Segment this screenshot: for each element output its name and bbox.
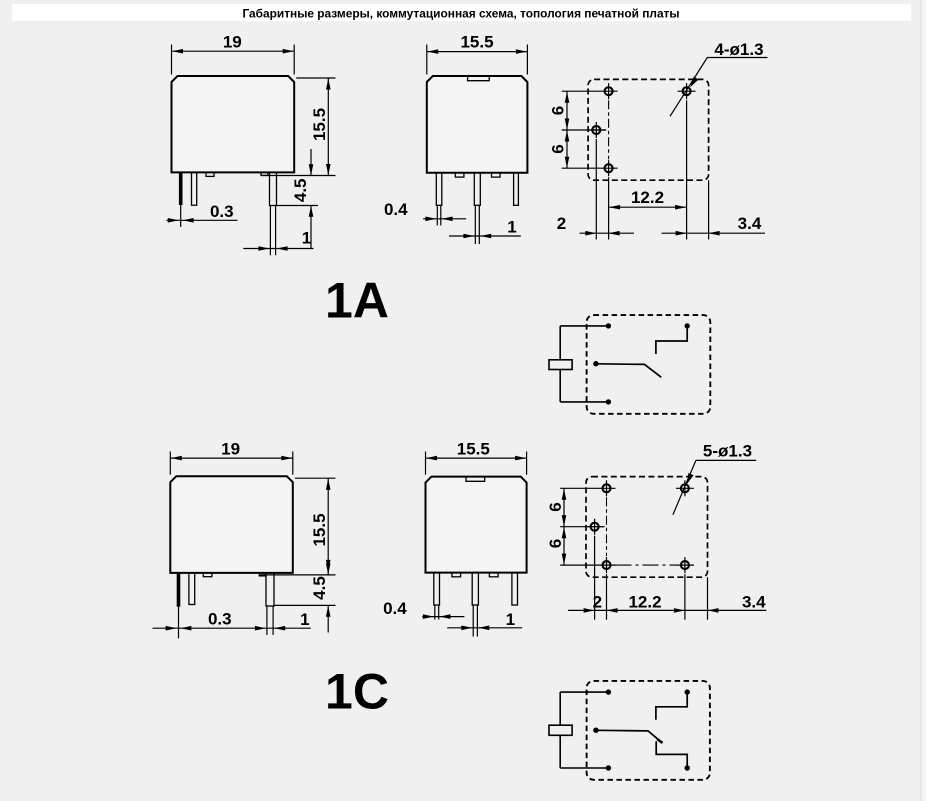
svg-text:6: 6 [549,144,568,153]
svg-text:1: 1 [300,610,309,629]
svg-text:4.5: 4.5 [291,178,310,202]
svg-text:4-ø1.3: 4-ø1.3 [714,40,763,59]
svg-text:3.4: 3.4 [738,214,762,233]
svg-text:0.3: 0.3 [208,610,232,629]
svg-text:0.4: 0.4 [383,599,407,618]
svg-text:15.5: 15.5 [460,33,493,52]
svg-text:0.3: 0.3 [210,202,234,221]
svg-text:1: 1 [506,610,515,629]
svg-text:6: 6 [549,106,568,115]
svg-text:1A: 1A [325,273,389,329]
svg-text:5-ø1.3: 5-ø1.3 [703,442,752,461]
svg-text:19: 19 [223,33,242,52]
svg-text:1C: 1C [325,664,389,720]
svg-text:0.4: 0.4 [384,200,408,219]
svg-text:1: 1 [507,218,516,237]
svg-text:1: 1 [302,229,311,248]
svg-text:6: 6 [546,539,565,548]
svg-text:12.2: 12.2 [628,593,661,612]
svg-text:4.5: 4.5 [310,576,329,600]
svg-text:Габаритные размеры, коммутацио: Габаритные размеры, коммутационная схема… [242,7,679,21]
svg-text:19: 19 [221,440,240,459]
svg-text:12.2: 12.2 [631,188,664,207]
svg-text:15.5: 15.5 [310,108,329,141]
svg-text:2: 2 [557,214,566,233]
svg-text:6: 6 [546,502,565,511]
svg-text:15.5: 15.5 [457,440,490,459]
svg-text:2: 2 [593,593,602,612]
svg-text:15.5: 15.5 [310,513,329,546]
svg-text:3.4: 3.4 [742,593,766,612]
